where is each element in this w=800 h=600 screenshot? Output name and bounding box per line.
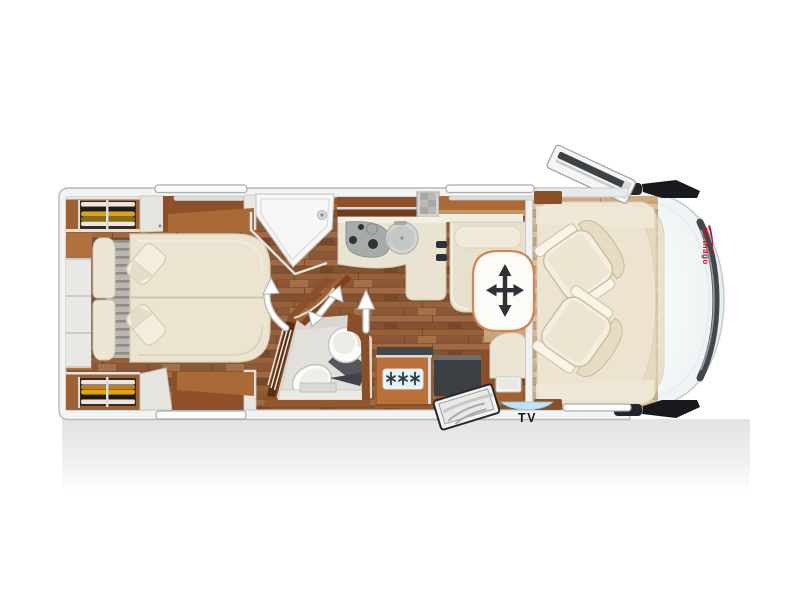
svg-text:TV: TV — [518, 411, 537, 425]
svg-text:carthago: carthago — [701, 227, 710, 265]
